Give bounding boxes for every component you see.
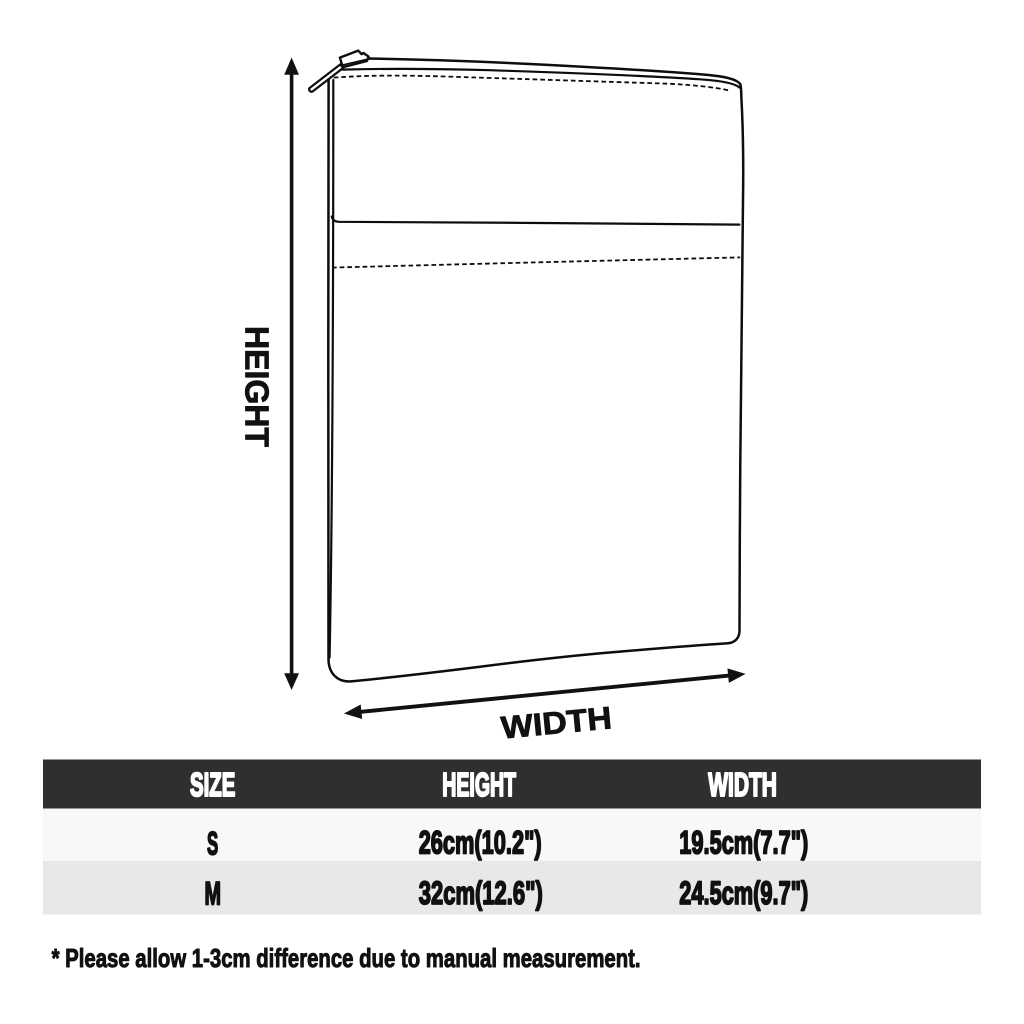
svg-text:19.5cm(7.7"): 19.5cm(7.7") xyxy=(679,825,808,861)
svg-text:24.5cm(9.7"): 24.5cm(9.7") xyxy=(679,875,808,911)
svg-text:32cm(12.6"): 32cm(12.6") xyxy=(419,875,543,911)
svg-text:S: S xyxy=(207,826,218,862)
svg-text:* Please allow 1-3cm differenc: * Please allow 1-3cm difference due to m… xyxy=(52,943,641,973)
svg-text:WIDTH: WIDTH xyxy=(708,766,777,803)
svg-text:M: M xyxy=(205,876,222,912)
svg-text:26cm(10.2"): 26cm(10.2") xyxy=(419,825,542,861)
svg-text:HEIGHT: HEIGHT xyxy=(239,326,276,447)
svg-text:SIZE: SIZE xyxy=(190,766,235,803)
svg-text:HEIGHT: HEIGHT xyxy=(442,766,516,803)
